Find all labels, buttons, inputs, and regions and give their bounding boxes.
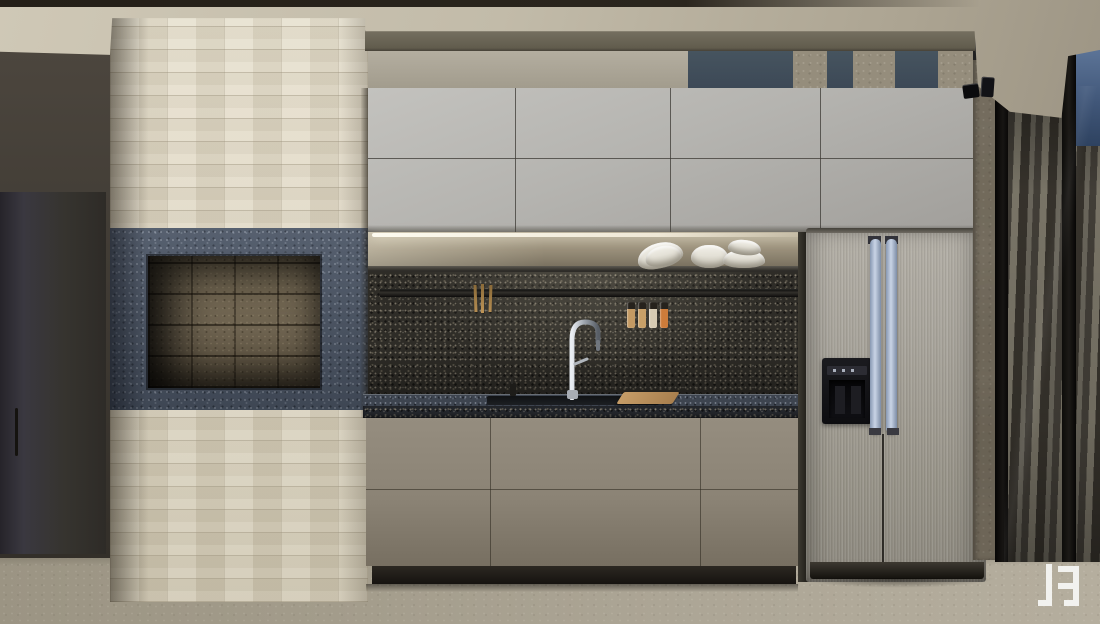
under-cabinet-led-strip bbox=[372, 233, 810, 237]
fireplace-niche bbox=[148, 256, 320, 388]
fridge-handle-left bbox=[870, 239, 881, 433]
spice-jar bbox=[638, 302, 646, 328]
ceiling-spotlight bbox=[962, 83, 980, 99]
base-cabinet-seam bbox=[700, 418, 701, 566]
spice-jar bbox=[627, 302, 635, 328]
cutting-board bbox=[616, 392, 679, 404]
soffit-band bbox=[365, 30, 975, 51]
dispenser-paddle bbox=[835, 386, 845, 414]
fridge-handle-bracket bbox=[869, 428, 881, 435]
spice-jar bbox=[660, 302, 668, 328]
exterior-pillar bbox=[853, 51, 895, 90]
ceiling-spotlight bbox=[980, 77, 994, 98]
soap-pump-spout bbox=[511, 378, 513, 384]
cabinet-floor-shadow bbox=[366, 584, 798, 592]
fridge-plinth bbox=[810, 562, 984, 579]
toe-kick bbox=[372, 566, 796, 584]
fridge-handle-right bbox=[886, 239, 897, 433]
soap-pump bbox=[510, 383, 516, 396]
watermark-logo bbox=[1036, 560, 1082, 610]
countertop-edge bbox=[363, 406, 813, 418]
base-cabinet-seam bbox=[366, 489, 798, 490]
cabinet-column-gap bbox=[361, 88, 368, 418]
spice-jar bbox=[649, 302, 657, 328]
kitchen-render bbox=[0, 0, 1100, 624]
base-cabinet-seam bbox=[490, 418, 491, 566]
fridge-handle-bracket bbox=[887, 428, 899, 435]
utensil-rail bbox=[380, 289, 800, 297]
base-cabinets bbox=[366, 418, 798, 566]
upper-cabinet-seam bbox=[820, 88, 821, 232]
soffit-panel bbox=[368, 51, 688, 90]
exterior-glimpse-glass bbox=[688, 51, 973, 90]
glass-reflection bbox=[1004, 86, 1100, 562]
fridge-door-gap bbox=[882, 434, 884, 562]
dispenser-indicator-lights bbox=[833, 369, 855, 372]
upper-cabinet-seam bbox=[515, 88, 516, 232]
left-door bbox=[0, 192, 106, 554]
bowl-single bbox=[691, 245, 728, 268]
door-handle bbox=[15, 408, 18, 456]
ceiling-recess-band bbox=[0, 0, 980, 7]
hanging-utensil bbox=[481, 284, 484, 313]
dispenser-paddle bbox=[851, 386, 861, 414]
faucet bbox=[560, 312, 612, 400]
fridge-floor-shadow bbox=[800, 578, 996, 588]
upper-cabinet-seam bbox=[670, 88, 671, 232]
refrigerator-top-edge bbox=[806, 228, 986, 233]
exterior-pillar bbox=[793, 51, 827, 90]
